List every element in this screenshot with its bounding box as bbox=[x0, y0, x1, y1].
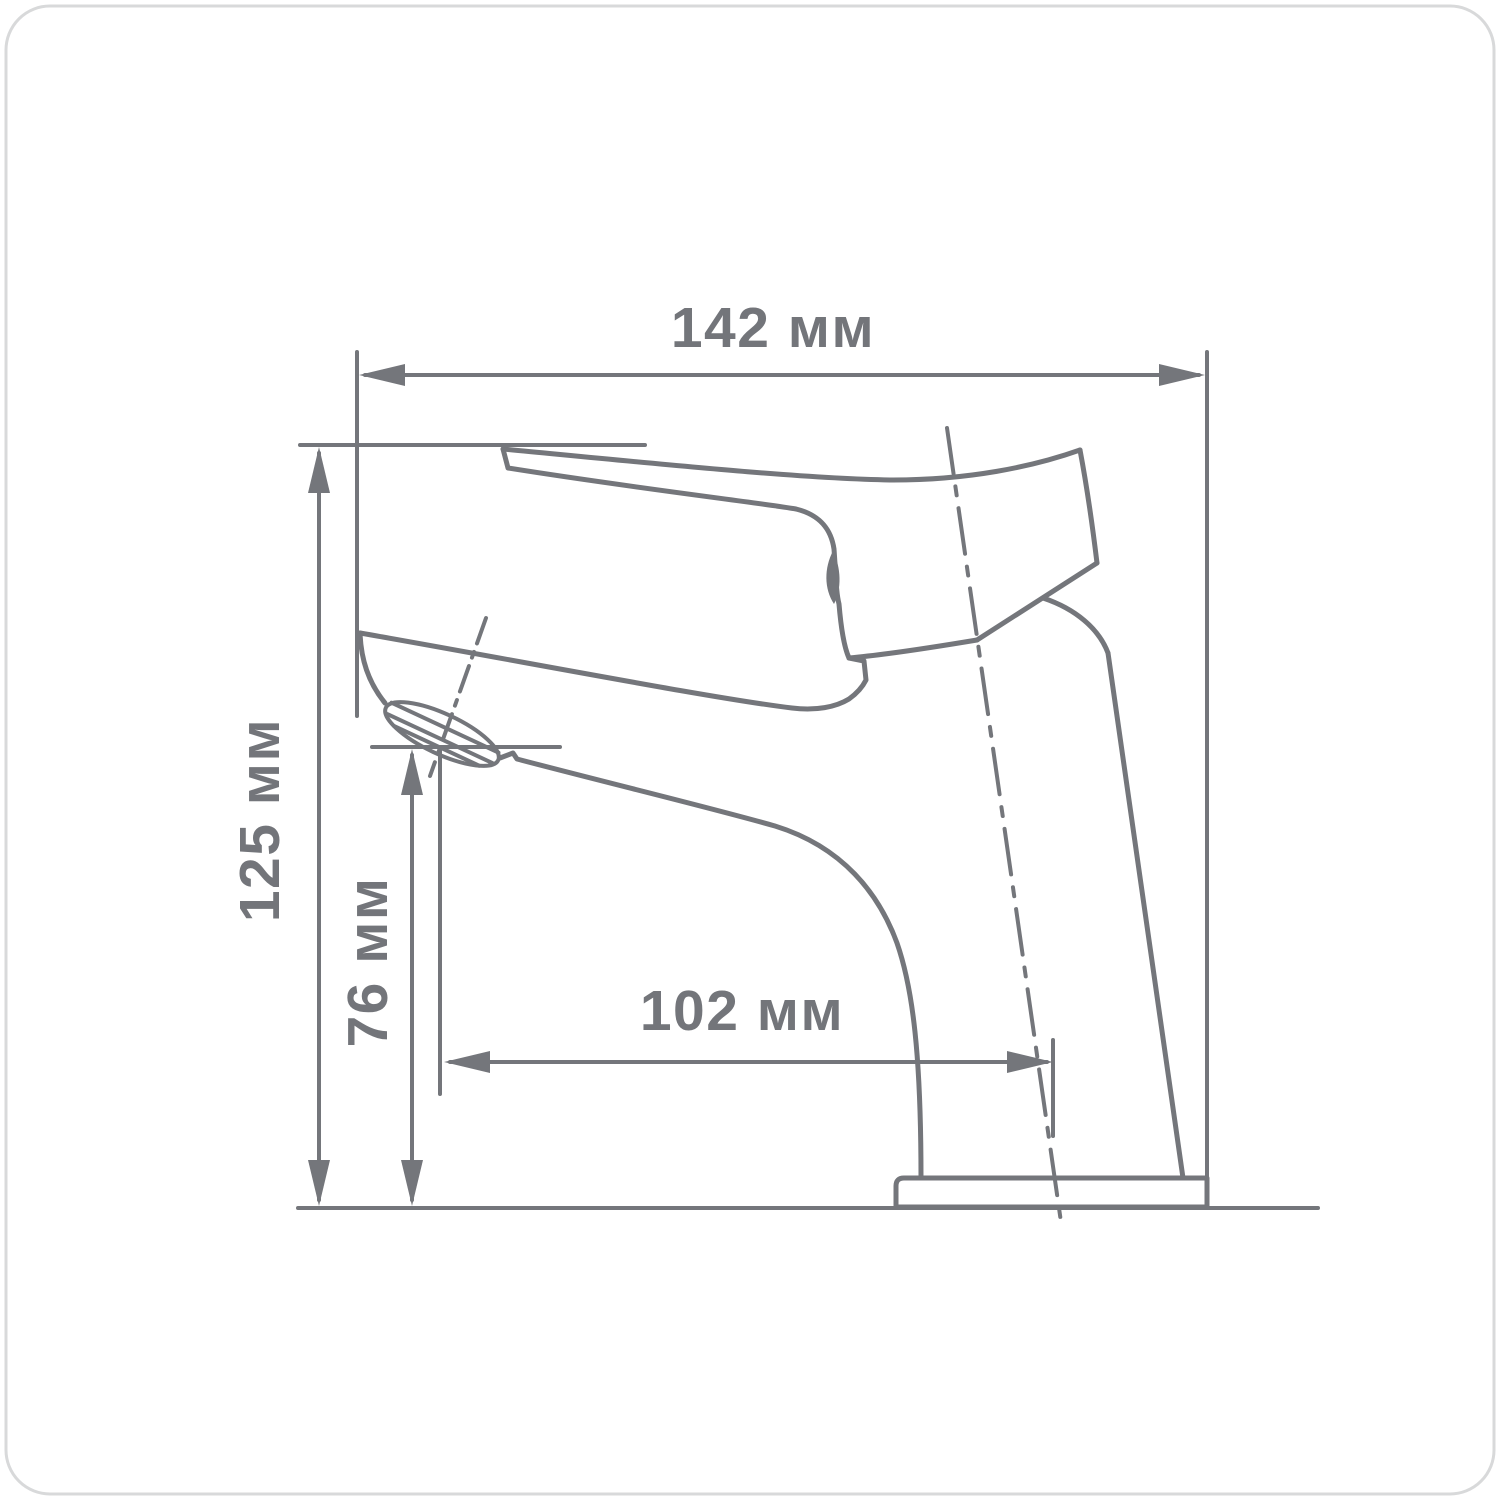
drawing-fills bbox=[298, 352, 1318, 1222]
arrowhead-top bbox=[401, 749, 423, 795]
dimension-spout-outlet-height bbox=[401, 749, 423, 1206]
centerlines bbox=[430, 428, 1061, 1222]
lever-front-edge bbox=[503, 449, 849, 658]
body-right-edge bbox=[1108, 653, 1183, 1178]
product-dimensions-card: 142 мм 125 мм 76 мм 102 мм bbox=[0, 0, 1500, 1500]
handle-bottom-cut-edge bbox=[977, 563, 1097, 640]
arrowhead-right bbox=[1159, 364, 1205, 386]
spout-tip-face bbox=[360, 633, 385, 703]
arrowhead-bottom bbox=[401, 1160, 423, 1206]
arrowhead-top bbox=[308, 447, 330, 493]
body-shoulder-arc bbox=[1043, 598, 1108, 653]
lever-top-edge bbox=[503, 449, 1080, 480]
body-saddle-line bbox=[849, 640, 977, 658]
dimension-spout-reach bbox=[444, 1051, 1053, 1073]
dim-label-spout-reach: 102 мм bbox=[640, 979, 844, 1043]
dimension-overall-width bbox=[359, 364, 1205, 386]
drawing-strokes bbox=[298, 352, 1318, 1222]
dimension-overall-height bbox=[308, 447, 330, 1206]
spout-underside-body-left-edge bbox=[500, 753, 921, 1178]
faucet-outline bbox=[360, 449, 1207, 1207]
base-plate bbox=[896, 1178, 1207, 1207]
arrowhead-right bbox=[1007, 1051, 1053, 1073]
faucet-technical-drawing: 142 мм 125 мм 76 мм 102 мм bbox=[0, 0, 1500, 1500]
handle-back-edge bbox=[1080, 450, 1097, 563]
dim-label-overall-width: 142 мм bbox=[671, 296, 875, 360]
dimension-labels: 142 мм 125 мм 76 мм 102 мм bbox=[228, 296, 875, 1048]
dim-label-overall-height: 125 мм bbox=[228, 718, 292, 922]
arrowhead-bottom bbox=[308, 1160, 330, 1206]
extension-lines bbox=[298, 352, 1318, 1208]
spout-top-edge bbox=[360, 633, 866, 709]
body-column-centerline bbox=[947, 428, 1061, 1222]
arrowhead-left bbox=[359, 364, 405, 386]
arrowhead-left bbox=[444, 1051, 490, 1073]
dim-label-spout-outlet-height: 76 мм bbox=[336, 876, 400, 1047]
